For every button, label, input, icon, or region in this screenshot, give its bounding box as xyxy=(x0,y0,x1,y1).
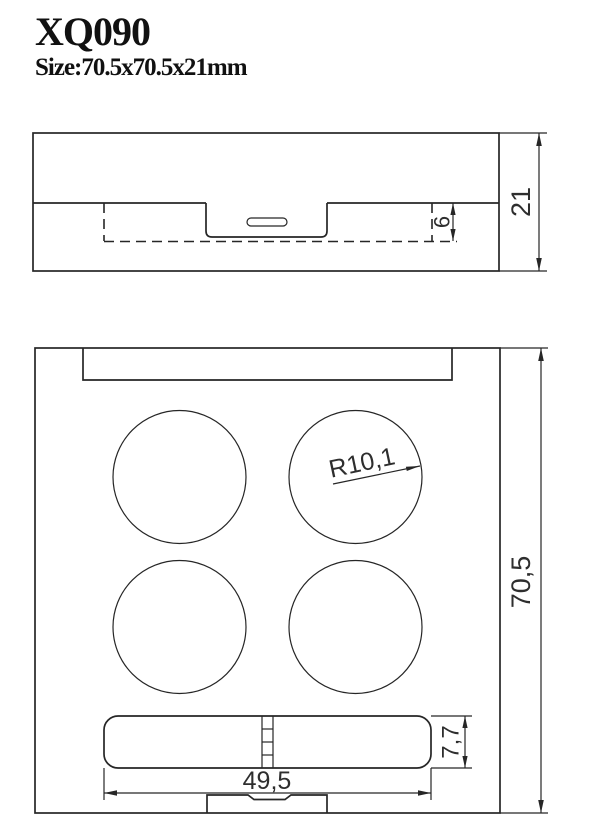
side-view-outline xyxy=(33,133,499,271)
front-tab xyxy=(207,795,327,813)
latch-slot xyxy=(247,218,287,226)
dim-label-hinge-width: 7,7 xyxy=(438,725,465,758)
dim-705-arrow-up xyxy=(538,348,544,361)
powder-well-bottom-right xyxy=(289,561,422,694)
side-view: 6 21 xyxy=(33,133,547,271)
dim-label-total-width: 70,5 xyxy=(506,556,536,609)
dim-label-hinge-length: 49,5 xyxy=(243,767,292,795)
dim-6-arrow-up xyxy=(450,203,455,215)
top-view: R10,1 49,5 7,7 xyxy=(35,348,548,813)
dim-6-arrow-down xyxy=(450,229,455,241)
dim-label-inner-depth: 6 xyxy=(430,216,455,228)
technical-drawing: 6 21 R10,1 xyxy=(0,0,603,838)
radius-leader-arrow xyxy=(406,466,420,471)
dim-label-total-height: 21 xyxy=(506,187,536,217)
latch-recess xyxy=(206,203,327,237)
dim-21-arrow-up xyxy=(536,133,542,146)
drawing-sheet: XQ090 Size:70.5x70.5x21mm 6 xyxy=(0,0,603,838)
powder-well-bottom-left xyxy=(113,561,246,694)
powder-well-top-left xyxy=(113,411,246,544)
dim-495-arrow-left xyxy=(104,790,117,795)
dim-21-arrow-down xyxy=(536,258,542,271)
mirror-recess xyxy=(83,348,452,380)
dim-495-arrow-right xyxy=(418,790,431,795)
dim-705-arrow-down xyxy=(538,800,544,813)
